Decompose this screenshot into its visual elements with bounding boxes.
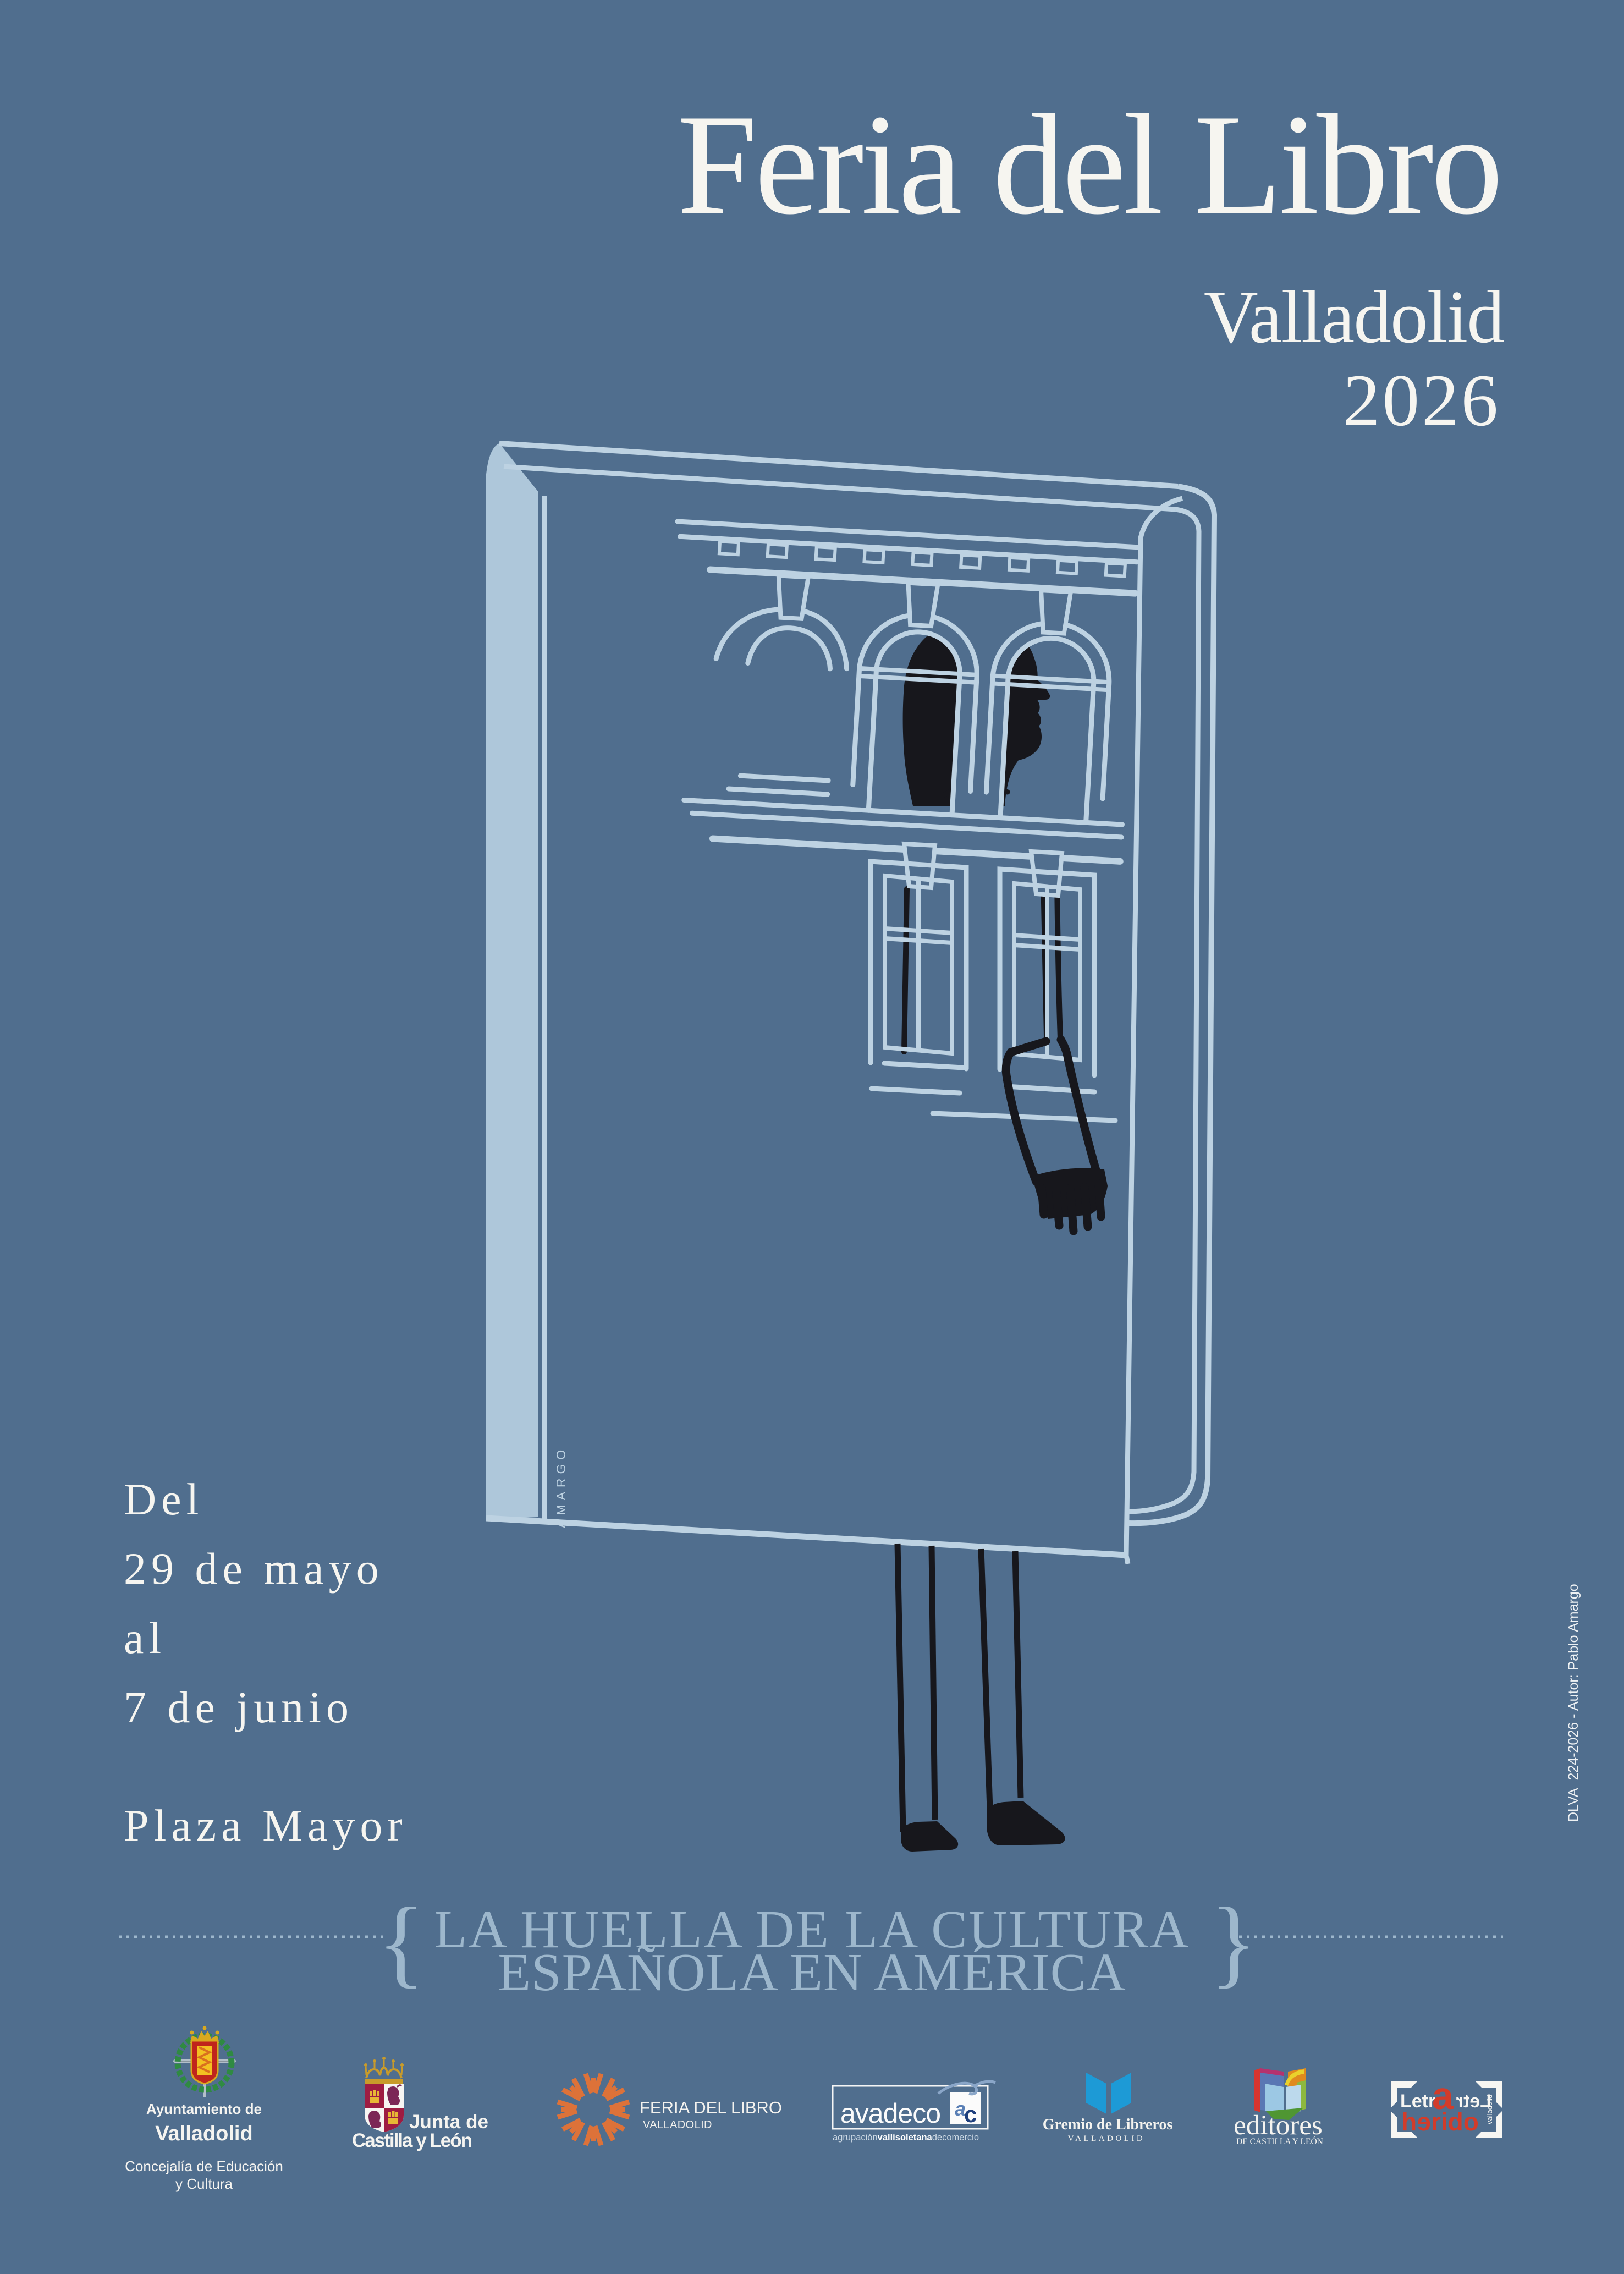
svg-text:Ayuntamiento de: Ayuntamiento de xyxy=(146,2101,262,2117)
svg-text:c: c xyxy=(964,2101,977,2127)
svg-text:valladolid: valladolid xyxy=(1485,2095,1494,2124)
svg-text:AMARGO: AMARGO xyxy=(554,1446,568,1528)
svg-text:rido: rido xyxy=(1431,2107,1479,2136)
svg-text:VALLADOLID: VALLADOLID xyxy=(643,2119,712,2131)
svg-text:Castilla y León: Castilla y León xyxy=(352,2130,472,2151)
svg-text:e: e xyxy=(1417,2107,1431,2136)
svg-text:Concejalía de Educación: Concejalía de Educación xyxy=(125,2158,283,2174)
svg-text:Gremio de Libreros: Gremio de Libreros xyxy=(1043,2116,1173,2133)
svg-text:VALLADOLID: VALLADOLID xyxy=(1068,2134,1146,2143)
svg-text:y Cultura: y Cultura xyxy=(175,2176,233,2192)
svg-text:DE CASTILLA Y LEÓN: DE CASTILLA Y LEÓN xyxy=(1236,2137,1323,2146)
svg-text:Valladolid: Valladolid xyxy=(155,2122,252,2145)
svg-text:FERIA DEL LIBRO: FERIA DEL LIBRO xyxy=(640,2098,782,2117)
svg-text:avadeco: avadeco xyxy=(840,2098,940,2129)
svg-text:agrupaciónvallisoletanadecomer: agrupaciónvallisoletanadecomercio xyxy=(833,2133,979,2143)
svg-text:editores: editores xyxy=(1234,2110,1322,2141)
svg-text:h: h xyxy=(1401,2107,1417,2136)
